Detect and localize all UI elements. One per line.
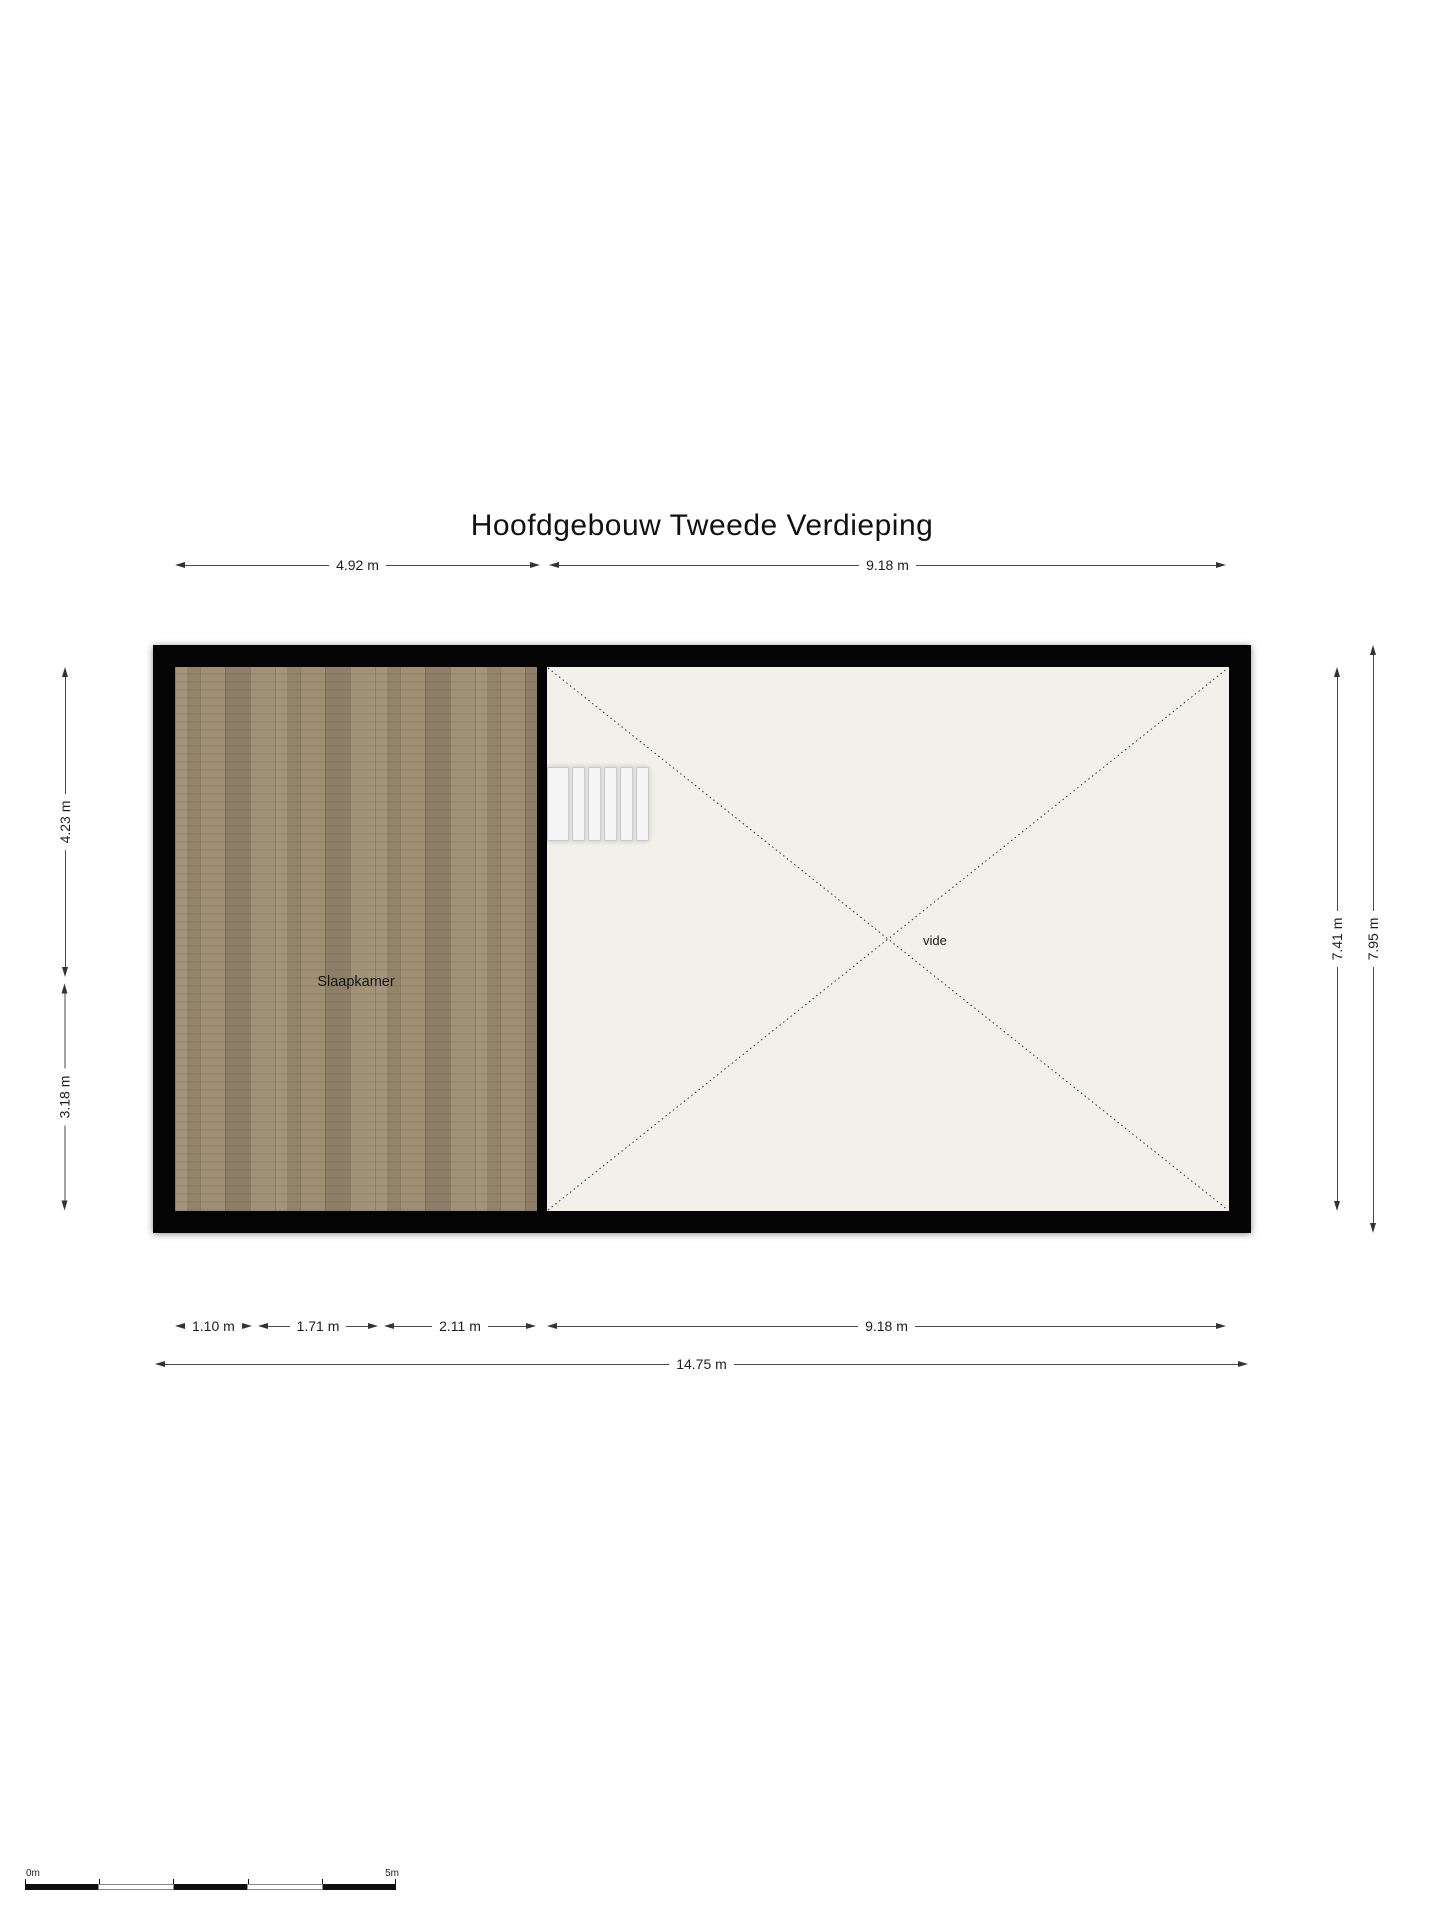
dim-line [488, 1326, 526, 1327]
dim-label: 7.95 m [1365, 911, 1381, 968]
dim-label: 2.11 m [432, 1318, 488, 1334]
stair-tread [620, 767, 633, 841]
dim-line [185, 565, 329, 566]
arrow-down-icon [62, 1201, 68, 1211]
dim-right-outer: 7.95 m [1365, 645, 1381, 1233]
arrow-right-icon [1216, 562, 1226, 568]
floor-plan: Slaapkamer vide [153, 645, 1251, 1233]
interior-wall [537, 667, 547, 1211]
dim-line [559, 565, 859, 566]
arrow-left-icon [258, 1323, 268, 1329]
arrow-left-icon [175, 1323, 185, 1329]
arrow-up-icon [1370, 645, 1376, 655]
scale-start-label: 0m [26, 1868, 40, 1879]
arrow-up-icon [1334, 667, 1340, 677]
arrow-down-icon [62, 967, 68, 977]
dim-left-lower: 3.18 m [57, 984, 73, 1211]
dim-line [268, 1326, 290, 1327]
dim-label: 1.10 m [185, 1318, 242, 1334]
dim-label: 9.18 m [858, 1318, 915, 1334]
arrow-left-icon [384, 1323, 394, 1329]
dim-line [64, 994, 65, 1069]
dim-line [916, 565, 1216, 566]
void-cross-icon [547, 667, 1229, 1211]
dim-line [557, 1326, 858, 1327]
stair-tread [572, 767, 585, 841]
stair-tread [636, 767, 649, 841]
dim-line [915, 1326, 1216, 1327]
dim-bottom-seg-4: 9.18 m [547, 1318, 1226, 1334]
dim-label: 7.41 m [1329, 911, 1345, 968]
room-label-vide: vide [923, 933, 947, 949]
dim-bottom-seg-1: 1.10 m [175, 1318, 252, 1334]
dim-label: 3.18 m [57, 1069, 73, 1126]
room-slaapkamer: Slaapkamer [175, 667, 537, 1211]
arrow-right-icon [368, 1323, 378, 1329]
dim-line [1337, 677, 1338, 911]
dim-line [1337, 967, 1338, 1201]
arrow-right-icon [530, 562, 540, 568]
dim-right-inner: 7.41 m [1329, 667, 1345, 1211]
room-label-slaapkamer: Slaapkamer [175, 974, 537, 990]
scale-bar-track [25, 1884, 396, 1890]
dim-line [165, 1364, 669, 1365]
dim-label: 4.23 m [57, 794, 73, 851]
dim-line [734, 1364, 1238, 1365]
scale-bar-segment [174, 1884, 247, 1890]
dim-top-bedroom: 4.92 m [175, 557, 540, 573]
arrow-left-icon [547, 1323, 557, 1329]
arrow-right-icon [1238, 1361, 1248, 1367]
arrow-down-icon [1334, 1201, 1340, 1211]
floorplan-page: Hoofdgebouw Tweede Verdieping 4.92 m 9.1… [0, 0, 1440, 1920]
room-vide: vide [547, 667, 1229, 1211]
dim-line [346, 1326, 368, 1327]
dim-line [65, 850, 66, 967]
arrow-left-icon [155, 1361, 165, 1367]
scale-bar-segment [98, 1884, 173, 1890]
dim-line [1373, 655, 1374, 911]
dim-line [65, 677, 66, 794]
stair-tread [547, 767, 569, 841]
arrow-right-icon [526, 1323, 536, 1329]
arrow-left-icon [549, 562, 559, 568]
dim-label: 1.71 m [290, 1318, 347, 1334]
stairs [547, 767, 649, 841]
arrow-left-icon [175, 562, 185, 568]
dim-label: 9.18 m [859, 557, 916, 573]
dim-line [64, 1125, 65, 1200]
dim-bottom-total: 14.75 m [155, 1356, 1248, 1372]
scale-bar-segment [323, 1884, 396, 1890]
dim-bottom-seg-3: 2.11 m [384, 1318, 536, 1334]
scale-bar-segment [25, 1884, 98, 1890]
dim-top-vide: 9.18 m [549, 557, 1226, 573]
dim-line [1373, 967, 1374, 1223]
scale-end-label: 5m [385, 1868, 399, 1879]
arrow-right-icon [242, 1323, 252, 1329]
stair-tread [604, 767, 617, 841]
scale-bar: 0m 5m [25, 1868, 397, 1891]
stair-tread [588, 767, 601, 841]
dim-label: 14.75 m [669, 1356, 734, 1372]
arrow-down-icon [1370, 1223, 1376, 1233]
scale-bar-segment [247, 1884, 322, 1890]
dim-line [394, 1326, 432, 1327]
dim-label: 4.92 m [329, 557, 386, 573]
dim-line [386, 565, 530, 566]
arrow-up-icon [62, 984, 68, 994]
dim-bottom-seg-2: 1.71 m [258, 1318, 378, 1334]
arrow-right-icon [1216, 1323, 1226, 1329]
page-title: Hoofdgebouw Tweede Verdieping [153, 509, 1251, 543]
dim-left-upper: 4.23 m [57, 667, 73, 977]
arrow-up-icon [62, 667, 68, 677]
